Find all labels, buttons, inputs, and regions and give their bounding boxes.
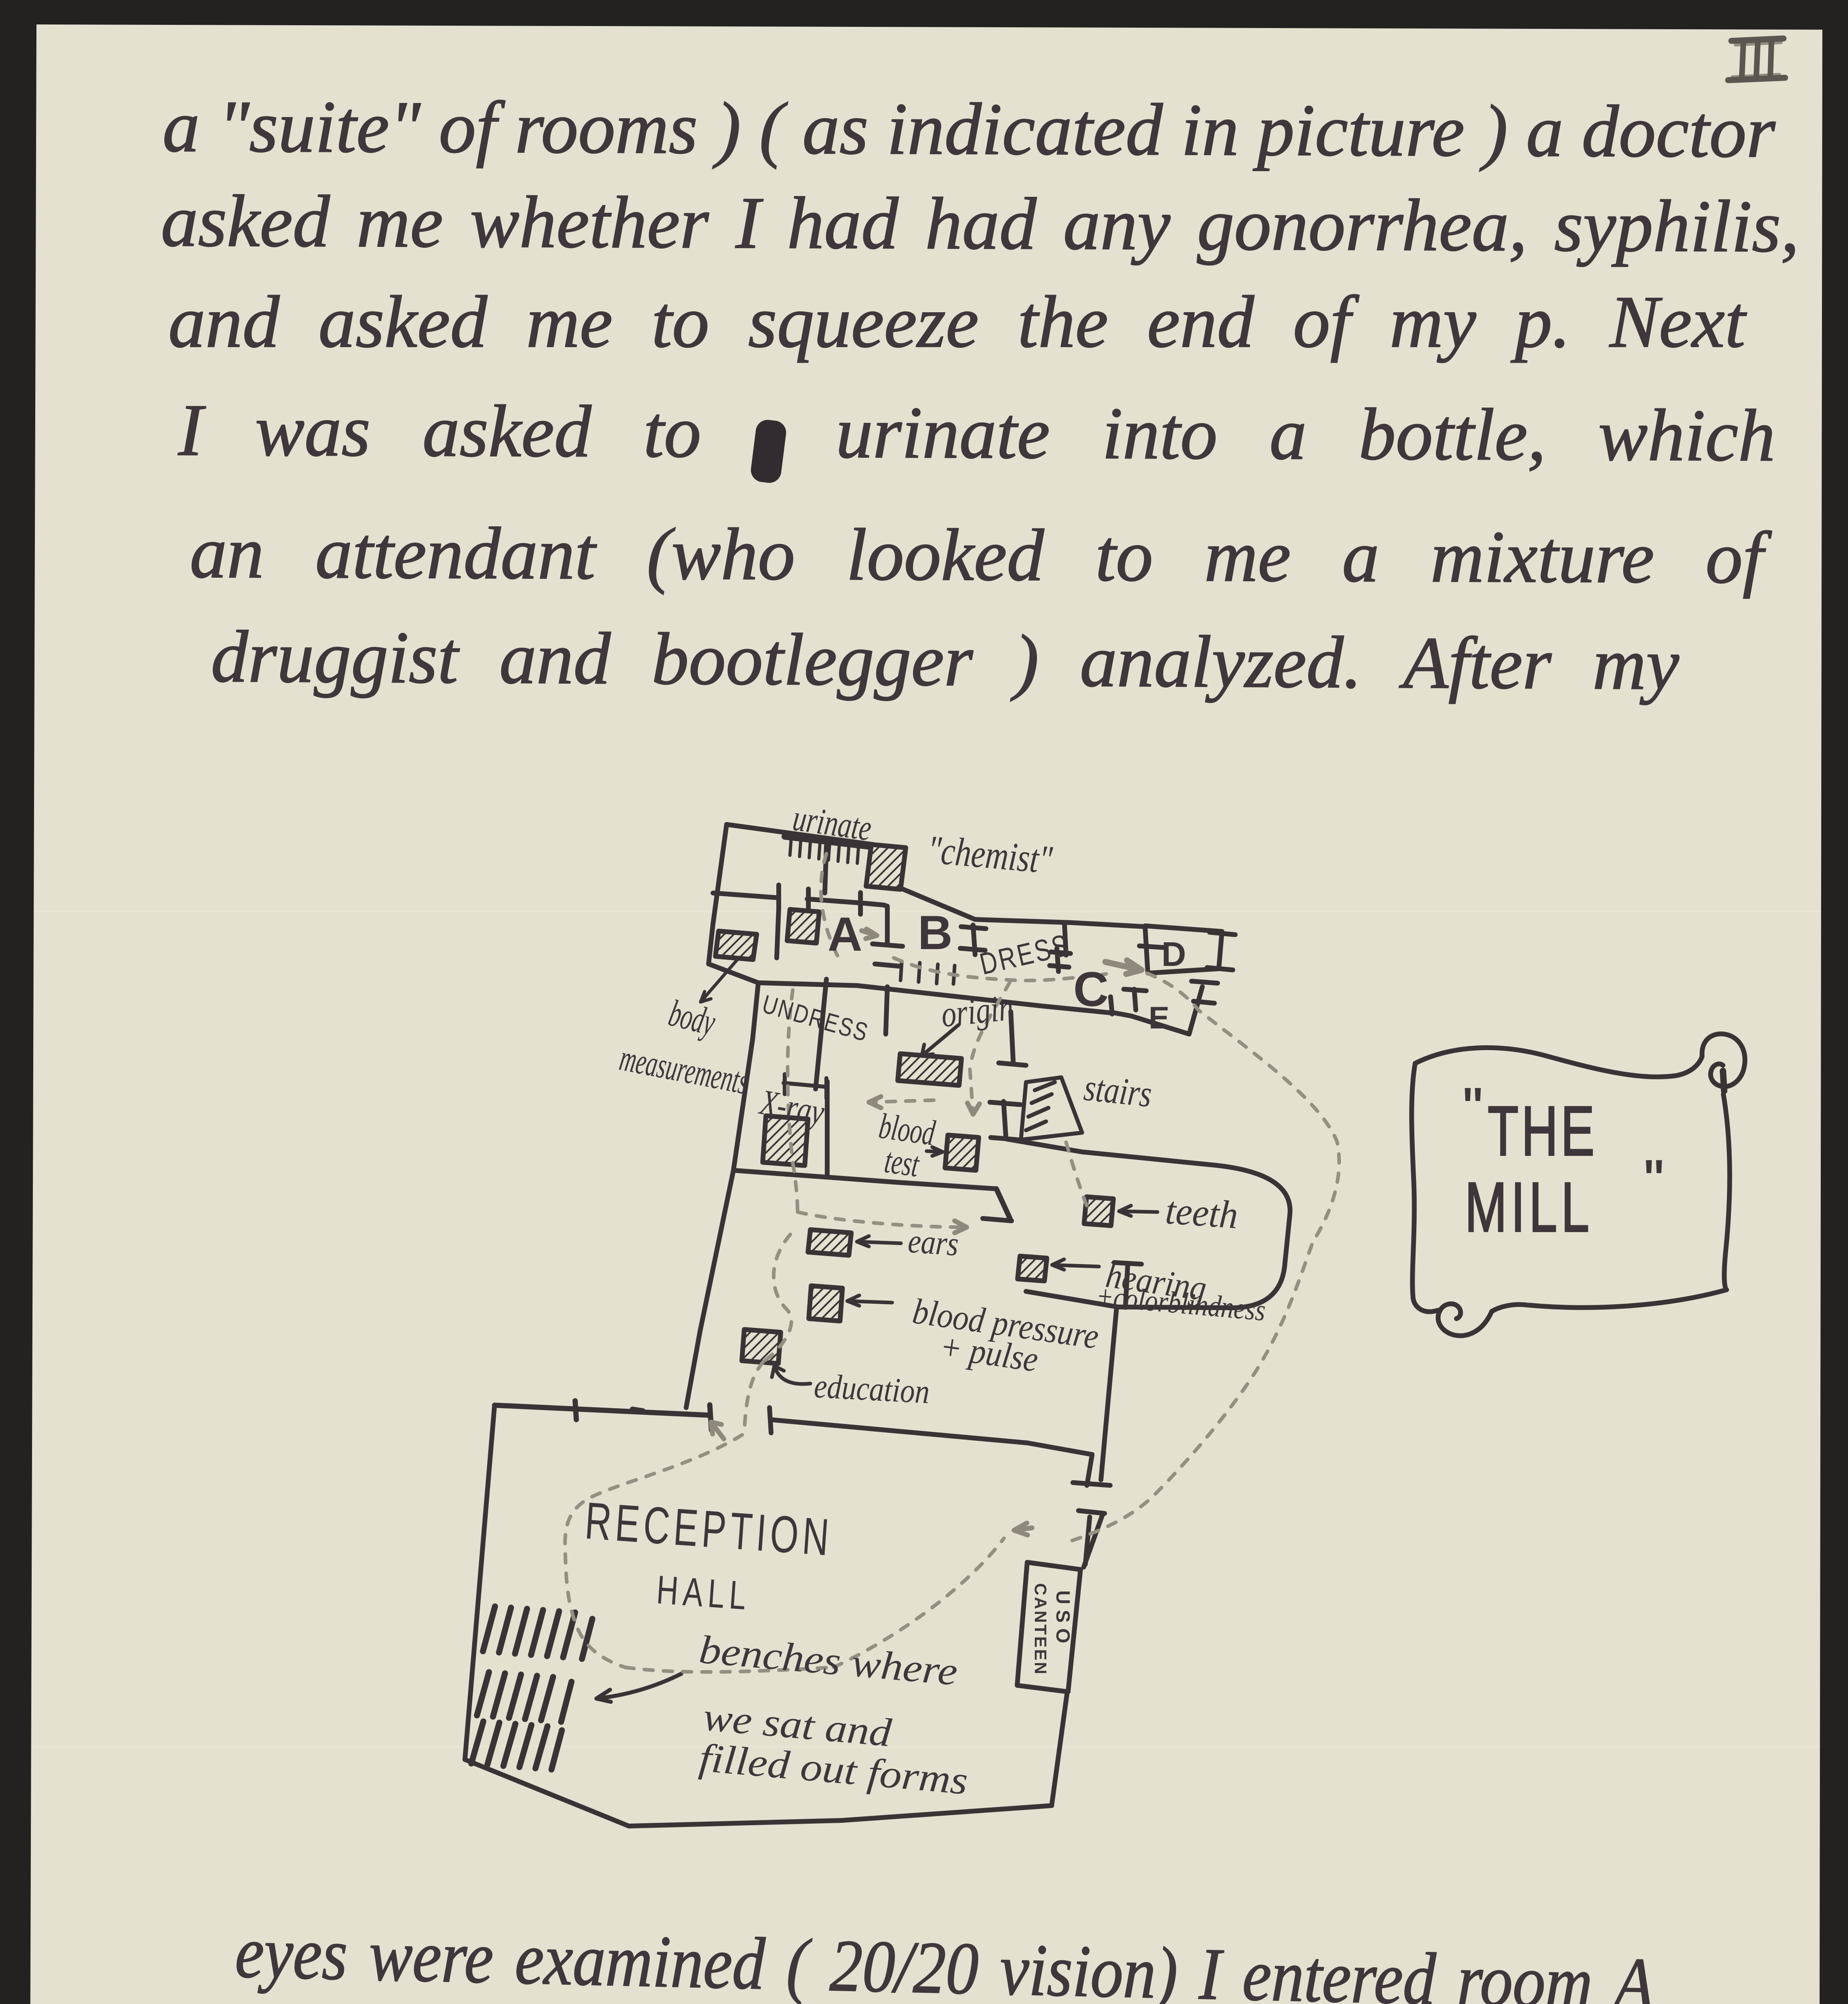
svg-text:CANTEEN: CANTEEN bbox=[1031, 1583, 1050, 1676]
svg-text:origin: origin bbox=[939, 987, 1016, 1035]
svg-text:teeth: teeth bbox=[1164, 1188, 1239, 1237]
svg-text:HALL: HALL bbox=[655, 1567, 753, 1618]
svg-text:C: C bbox=[1073, 962, 1109, 1016]
svg-text:E: E bbox=[1149, 1000, 1169, 1035]
svg-text:THE: THE bbox=[1488, 1092, 1598, 1170]
svg-text:MILL: MILL bbox=[1465, 1168, 1593, 1246]
svg-text:education: education bbox=[813, 1367, 931, 1411]
svg-text:": " bbox=[1463, 1076, 1483, 1139]
svg-text:benches where: benches where bbox=[697, 1627, 959, 1694]
svg-text:USO: USO bbox=[1052, 1590, 1073, 1649]
svg-text:A: A bbox=[828, 907, 862, 961]
svg-text:": " bbox=[1644, 1148, 1664, 1211]
svg-text:ears: ears bbox=[907, 1222, 960, 1263]
svg-text:measurements: measurements bbox=[616, 1037, 752, 1102]
svg-text:test: test bbox=[882, 1140, 922, 1185]
svg-text:"chemist": "chemist" bbox=[926, 827, 1054, 882]
svg-text:D: D bbox=[1161, 935, 1186, 974]
svg-text:B: B bbox=[918, 906, 953, 960]
svg-text:UNDRESS: UNDRESS bbox=[759, 990, 872, 1047]
svg-text:stairs: stairs bbox=[1082, 1066, 1154, 1115]
svg-text:+colorblindness: +colorblindness bbox=[1095, 1279, 1267, 1327]
svg-text:RECEPTION: RECEPTION bbox=[583, 1491, 835, 1567]
